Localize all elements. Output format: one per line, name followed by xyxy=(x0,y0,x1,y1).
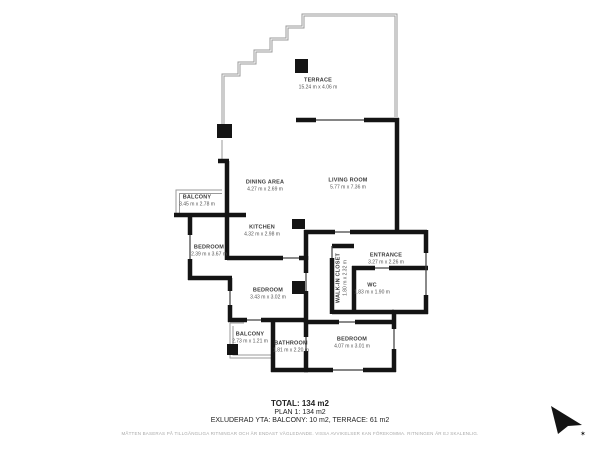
excluded-area-label: EXLUDERAD YTA: BALCONY: 10 m2, TERRACE: … xyxy=(0,417,600,424)
terrace-outline xyxy=(222,14,397,162)
pillar xyxy=(295,59,308,73)
floorplan-page: ✶ TERRACE 15.24 m x 4.06 m DINING AREA 4… xyxy=(0,0,600,450)
pillar xyxy=(292,219,305,229)
pillar xyxy=(217,124,232,138)
pillar xyxy=(292,281,305,294)
total-area-label: TOTAL: 134 m2 xyxy=(0,399,600,408)
plan-area-label: PLAN 1: 134 m2 xyxy=(0,409,600,416)
floorplan-drawing: ✶ xyxy=(0,0,600,450)
plan-summary: TOTAL: 134 m2 PLAN 1: 134 m2 EXLUDERAD Y… xyxy=(0,399,600,436)
balcony-left-outline xyxy=(176,190,222,215)
walls xyxy=(174,118,428,372)
pillar xyxy=(227,344,238,355)
disclaimer-text: MÅTTEN BASERAS PÅ TILLGÄNGLIGA RITNINGAR… xyxy=(0,431,600,436)
